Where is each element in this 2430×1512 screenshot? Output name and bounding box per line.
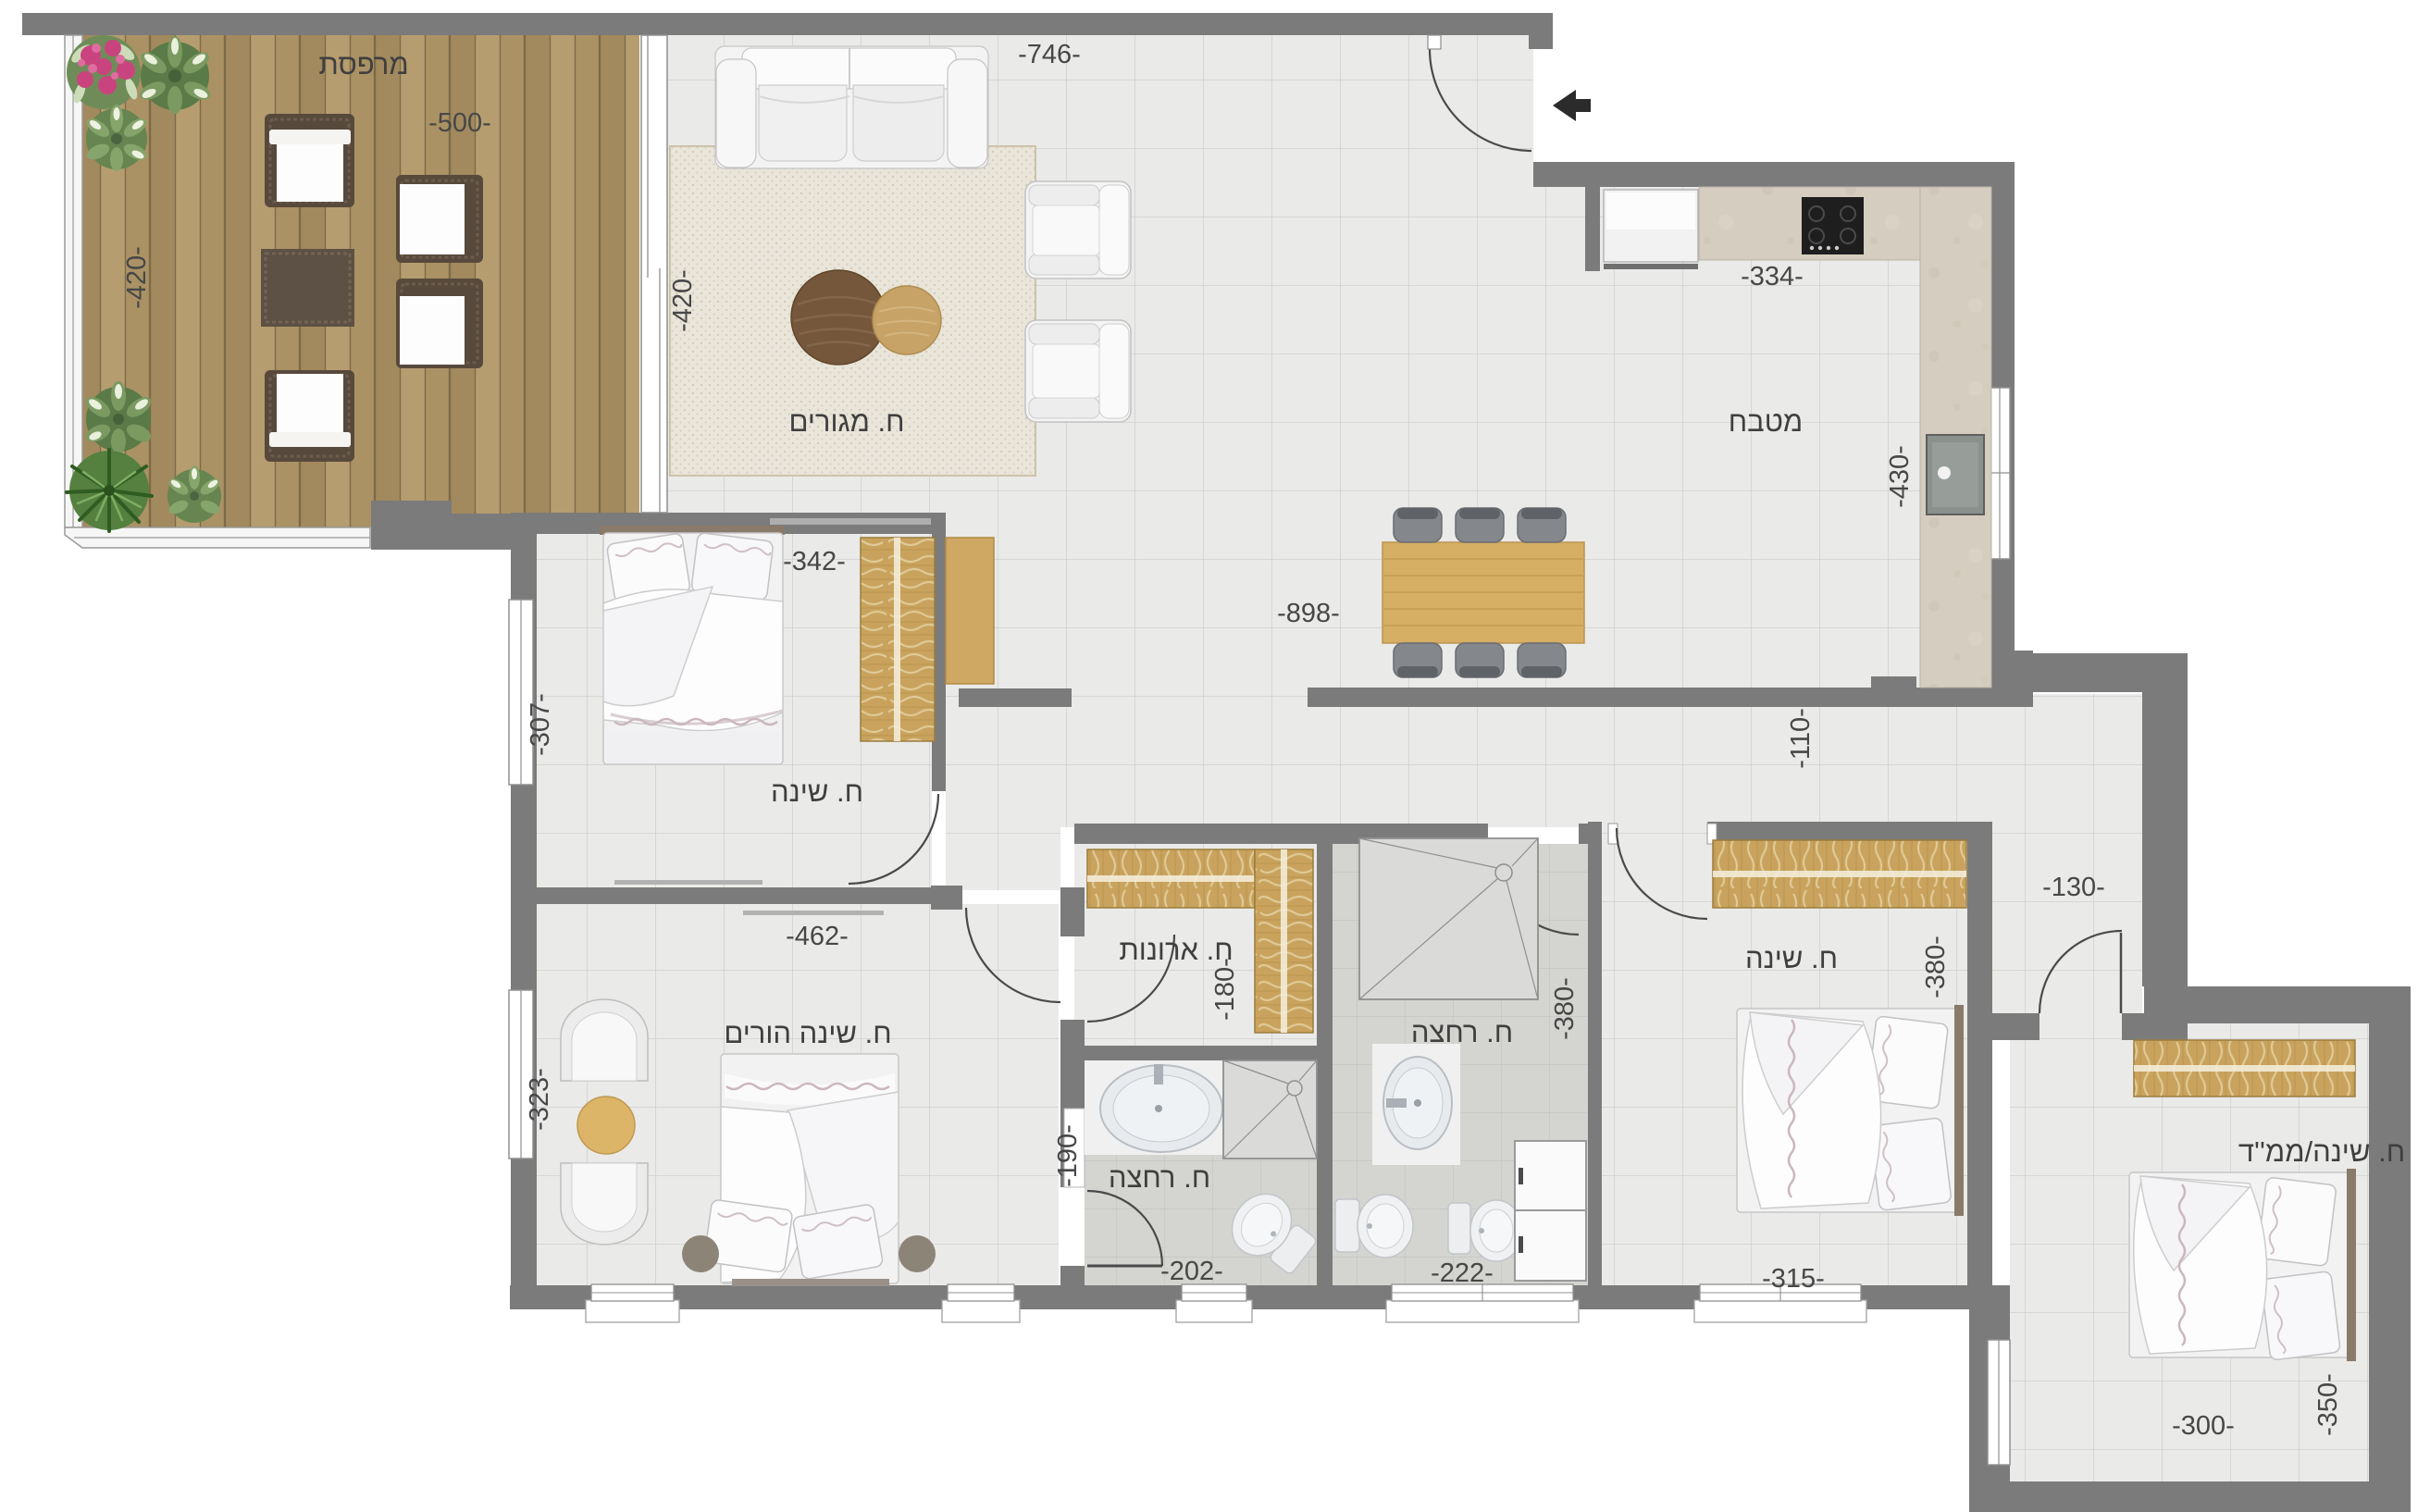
svg-text:-500-: -500- [428,108,491,138]
svg-text:-420-: -420- [668,269,698,332]
svg-text:-430-: -430- [1885,445,1915,508]
svg-text:ח. שינה הורים: ח. שינה הורים [724,1017,891,1049]
svg-text:-202-: -202- [1160,1257,1223,1286]
svg-text:מטבח: מטבח [1729,405,1803,438]
svg-text:-334-: -334- [1741,262,1804,291]
svg-text:ח. שינה: ח. שינה [771,775,863,808]
svg-text:-350-: -350- [2313,1373,2343,1436]
svg-text:ח. שינה: ח. שינה [1745,942,1838,974]
svg-text:-130-: -130- [2042,873,2105,902]
svg-text:-222-: -222- [1431,1258,1494,1288]
svg-text:-420-: -420- [122,246,152,309]
svg-text:-307-: -307- [526,693,555,756]
svg-text:-110-: -110- [1786,708,1816,769]
svg-text:-746-: -746- [1018,40,1081,69]
svg-text:-462-: -462- [786,922,849,951]
svg-text:מרפסת: מרפסת [318,48,408,81]
svg-text:-323-: -323- [525,1068,554,1131]
svg-text:-380-: -380- [1921,936,1951,998]
svg-text:-180-: -180- [1210,958,1240,1021]
svg-text:-315-: -315- [1762,1264,1825,1294]
svg-text:-898-: -898- [1277,599,1340,628]
svg-text:-342-: -342- [783,547,846,576]
svg-text:-300-: -300- [2172,1411,2235,1441]
svg-text:ח. שינה/ממ''ד: ח. שינה/ממ''ד [2238,1135,2405,1168]
svg-text:-380-: -380- [1550,977,1580,1040]
svg-text:ח. רחצה: ח. רחצה [1109,1161,1210,1194]
svg-text:-190-: -190- [1053,1124,1083,1187]
svg-text:ח. מגורים: ח. מגורים [788,405,904,438]
svg-text:ח. רחצה: ח. רחצה [1411,1016,1513,1048]
